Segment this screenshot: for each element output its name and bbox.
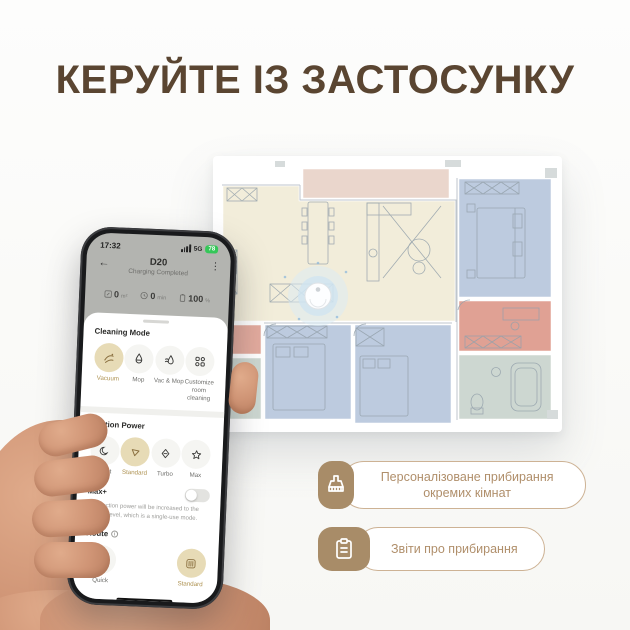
mode-option-custom-room[interactable]: Customize room cleaning xyxy=(183,346,216,402)
room-bedroom-bottom-b xyxy=(354,324,452,424)
feature-badge-label: Персоналізоване прибирання окремих кімна… xyxy=(340,461,586,509)
power-option-standard[interactable]: Standard xyxy=(119,437,151,478)
brush-icon xyxy=(318,461,354,509)
area-icon xyxy=(104,290,112,298)
home-indicator[interactable] xyxy=(116,598,172,604)
cleaning-stats: 0m² 0min 100% xyxy=(85,288,229,305)
power-option-turbo[interactable]: Turbo xyxy=(149,438,181,479)
cleaning-mode-title: Cleaning Mode xyxy=(94,327,216,341)
vac-mop-icon xyxy=(163,353,177,367)
stat-battery: 100% xyxy=(179,292,210,304)
mode-option-mop[interactable]: Mop xyxy=(123,344,155,385)
vacuum-icon xyxy=(102,351,116,365)
feature-badge-label: Звіти про прибирання xyxy=(356,527,545,571)
floor-plan-svg xyxy=(215,158,560,430)
quiet-icon xyxy=(99,445,111,457)
app-header: D20 Charging Completed xyxy=(86,254,231,279)
power-option-max[interactable]: Max xyxy=(180,440,212,481)
cleaning-mode-options: Vacuum Mop Vac & Mop Customize room clea… xyxy=(92,343,216,403)
network-label: 5G xyxy=(194,245,203,252)
battery-icon xyxy=(179,293,186,302)
max-plus-row: Max+ xyxy=(88,484,210,502)
mode-option-vac-mop[interactable]: Vac & Mop xyxy=(153,345,185,386)
report-icon xyxy=(318,527,370,571)
route-info-icon[interactable]: i xyxy=(111,531,118,538)
room-bedroom-right xyxy=(458,178,552,298)
hand-finger xyxy=(34,542,110,578)
battery-indicator: 78 xyxy=(205,245,218,254)
page-title: КЕРУЙТЕ ІЗ ЗАСТОСУНКУ xyxy=(0,58,630,103)
more-menu-button[interactable]: ⋮ xyxy=(210,261,220,272)
signal-icon xyxy=(181,244,191,252)
marketing-banner: КЕРУЙТЕ ІЗ ЗАСТОСУНКУ xyxy=(0,0,630,630)
max-plus-toggle[interactable] xyxy=(185,488,211,502)
mode-option-vacuum[interactable]: Vacuum xyxy=(92,343,124,384)
route-title: Route i xyxy=(86,529,208,543)
stat-area: 0m² xyxy=(104,289,128,301)
feature-badge-room-cleaning: Персоналізоване прибирання окремих кімна… xyxy=(318,461,586,509)
standard-icon xyxy=(129,446,141,458)
hand-finger xyxy=(31,498,111,538)
feature-badge-reports: Звіти про прибирання xyxy=(318,527,586,571)
room-balcony xyxy=(302,168,450,199)
status-time: 17:32 xyxy=(100,240,121,250)
max-icon xyxy=(190,448,202,460)
standard-route-icon xyxy=(185,557,197,569)
room-grid-icon xyxy=(193,355,207,369)
drag-handle[interactable] xyxy=(143,320,169,324)
turbo-icon xyxy=(160,447,172,459)
floor-plan-map xyxy=(213,156,562,432)
suction-power-title: Suction Power xyxy=(90,420,212,434)
card-divider xyxy=(80,406,224,418)
clock-icon xyxy=(140,291,148,299)
stat-time: 0min xyxy=(140,290,166,302)
route-option-standard[interactable]: Standard xyxy=(174,548,208,589)
mop-icon xyxy=(132,352,146,366)
